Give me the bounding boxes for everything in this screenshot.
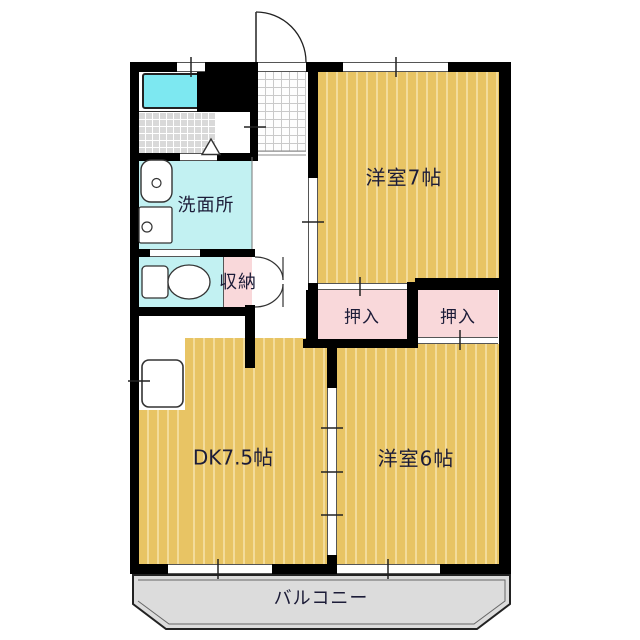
kitchen-counter [142, 360, 183, 407]
washer-drain [142, 222, 152, 232]
room-western6-label: 洋室6帖 [378, 443, 455, 472]
bathroom-door-icon [202, 139, 220, 155]
room-western7-label: 洋室7帖 [366, 162, 443, 191]
closet-left-label: 押入 [344, 303, 380, 328]
toilet-tank [142, 266, 168, 298]
room-dk-label: DK7.5帖 [193, 442, 273, 471]
closet-right-label: 押入 [440, 303, 476, 328]
vanity-drain [152, 179, 161, 188]
toilet-bowl [168, 265, 210, 299]
storage-label: 収納 [219, 268, 257, 294]
entrance-door-arc [256, 12, 306, 62]
balcony-label: バルコニー [274, 584, 369, 610]
fixtures-layer [0, 0, 640, 640]
floorplan: 洋室7帖 洋室6帖 DK7.5帖 洗面所 押入 押入 収納 バルコニー [0, 0, 640, 640]
storage-door-arc [255, 284, 283, 307]
storage-door-arc [255, 257, 283, 280]
washroom-label: 洗面所 [178, 191, 235, 217]
